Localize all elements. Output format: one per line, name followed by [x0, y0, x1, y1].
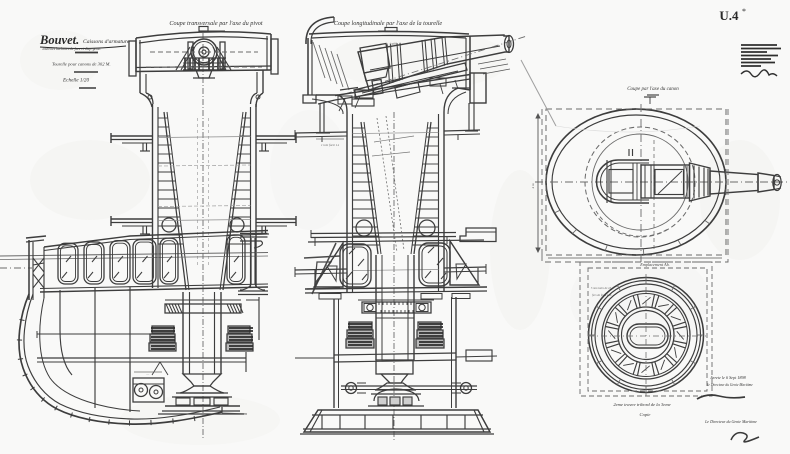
svg-text:4 m: 4 m — [531, 183, 535, 189]
svg-text:Coupe transversale par l'axe d: Coupe transversale par l'axe du pivot — [169, 20, 263, 27]
svg-text:Copie: Copie — [640, 412, 651, 417]
svg-text:5 mm toles de 10: 5 mm toles de 10 — [591, 286, 612, 290]
svg-text:*: * — [742, 7, 746, 16]
svg-text:Arrete le 6 Sept 1898: Arrete le 6 Sept 1898 — [709, 375, 746, 380]
svg-text:1 tole forte 14: 1 tole forte 14 — [321, 143, 339, 147]
svg-text:Emplacement Ab.: Emplacement Ab. — [639, 262, 669, 267]
svg-text:Bouvet.: Bouvet. — [39, 33, 79, 47]
svg-text:Echelle 1/20: Echelle 1/20 — [62, 78, 89, 84]
svg-text:Tourelles barbettes de face et: Tourelles barbettes de face et disp. gen… — [42, 47, 102, 51]
svg-text:U.4: U.4 — [719, 8, 739, 23]
svg-text:Tourelle pour canons de 302 M.: Tourelle pour canons de 302 M. — [52, 62, 111, 67]
svg-text:Coupe longitudinale par l'axe: Coupe longitudinale par l'axe de la tour… — [334, 20, 443, 27]
svg-text:2eme travee tribord de la 3eme: 2eme travee tribord de la 3eme — [613, 402, 670, 407]
svg-text:Coupe par l'axe du canon: Coupe par l'axe du canon — [627, 87, 679, 92]
svg-text:Le Directeur du Genie Maritime: Le Directeur du Genie Maritime — [704, 419, 757, 424]
svg-text:le Directeur du Genie Maritime: le Directeur du Genie Maritime — [707, 383, 753, 387]
svg-text:Caissons d'armature: Caissons d'armature — [83, 39, 130, 45]
